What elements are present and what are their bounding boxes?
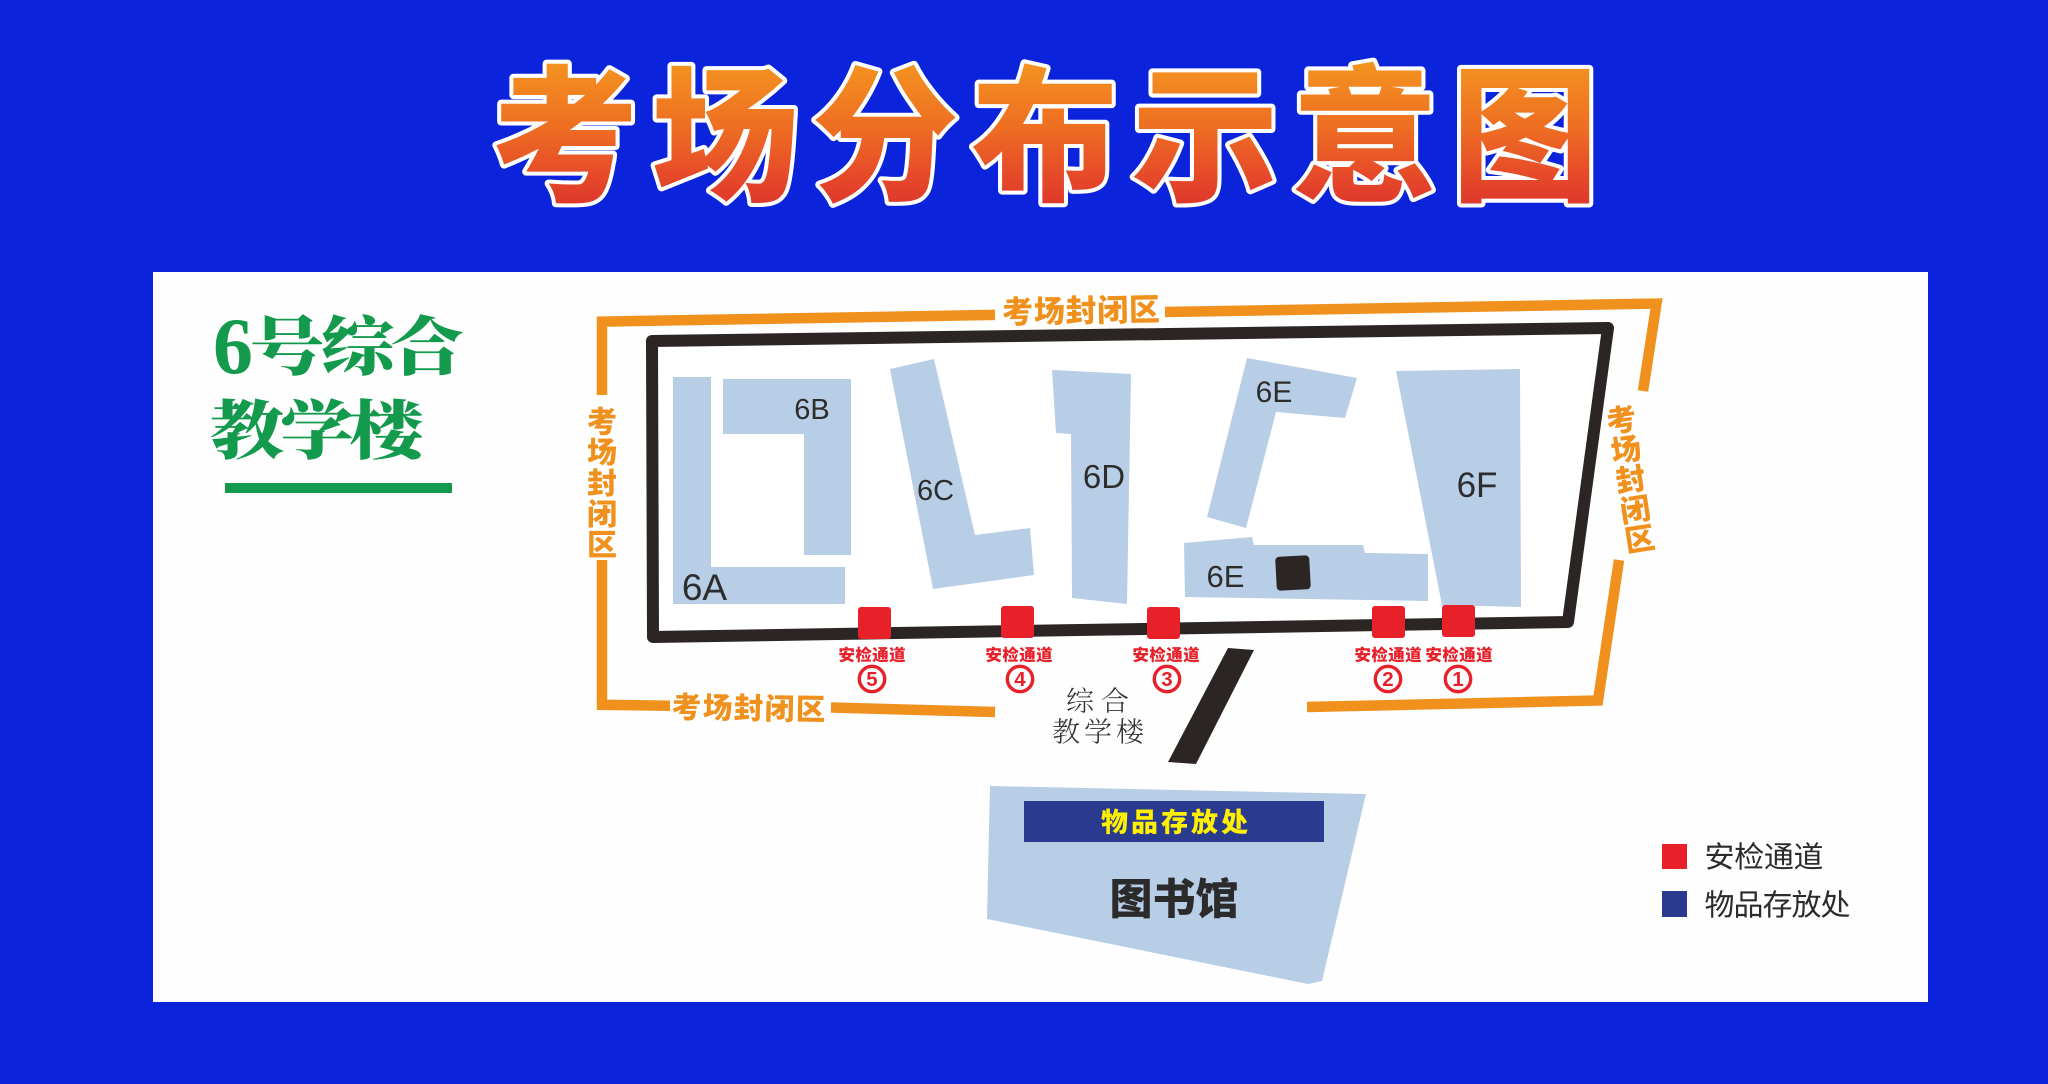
svg-text:6D: 6D <box>1083 458 1125 495</box>
svg-text:6C: 6C <box>917 475 954 507</box>
svg-text:6E: 6E <box>1207 559 1245 594</box>
svg-text:4: 4 <box>1014 668 1026 691</box>
svg-text:3: 3 <box>1161 668 1172 691</box>
svg-text:1: 1 <box>1452 668 1463 691</box>
svg-text:5: 5 <box>866 668 877 691</box>
svg-text:6: 6 <box>213 303 253 391</box>
svg-text:6B: 6B <box>794 394 829 426</box>
svg-text:2: 2 <box>1382 668 1393 691</box>
svg-text:6A: 6A <box>682 567 728 608</box>
svg-text:6E: 6E <box>1256 376 1293 409</box>
svg-text:6F: 6F <box>1457 466 1498 505</box>
